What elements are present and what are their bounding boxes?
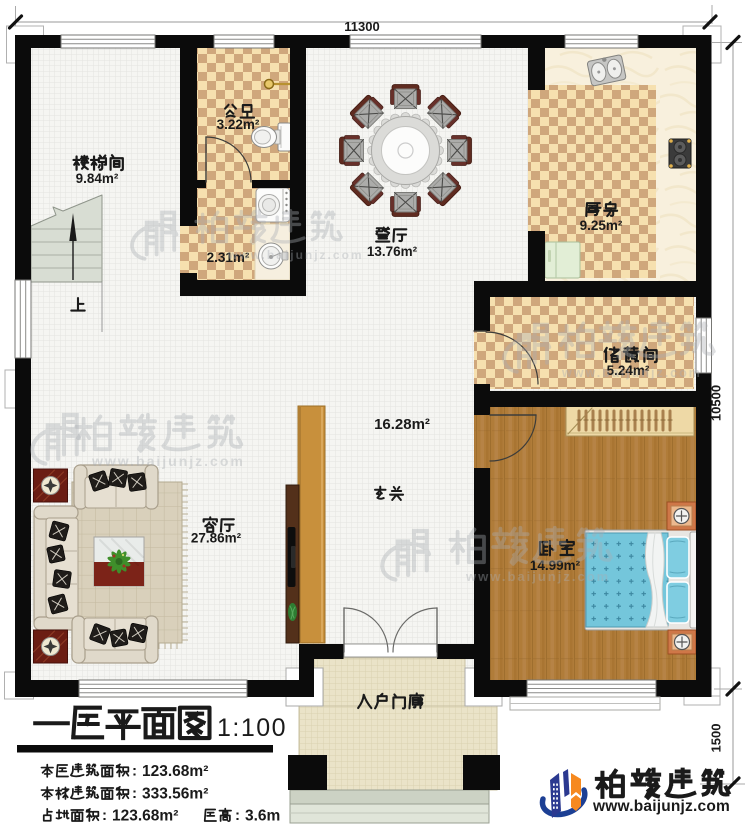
svg-text:www.baijunjz.com: www.baijunjz.com — [592, 798, 730, 815]
svg-text:1:100: 1:100 — [217, 714, 287, 742]
svg-text:9.84m²: 9.84m² — [76, 171, 119, 186]
svg-text:123.68m²: 123.68m² — [112, 808, 178, 825]
svg-text:www.baijunjz.com: www.baijunjz.com — [227, 248, 364, 262]
svg-text:3.6m: 3.6m — [245, 808, 280, 825]
svg-text:9.25m²: 9.25m² — [580, 218, 623, 233]
svg-text:333.56m²: 333.56m² — [142, 786, 208, 803]
svg-text:1500: 1500 — [709, 724, 724, 753]
svg-text:16.28m²: 16.28m² — [374, 416, 430, 433]
svg-text:27.86m²: 27.86m² — [191, 531, 242, 546]
svg-text:www.baijunjz.com: www.baijunjz.com — [465, 569, 610, 584]
svg-text:3.22m²: 3.22m² — [217, 117, 260, 132]
svg-text:11300: 11300 — [344, 19, 379, 34]
svg-text::: : — [102, 807, 107, 824]
svg-text:123.68m²: 123.68m² — [142, 763, 208, 780]
svg-text::: : — [132, 763, 137, 780]
svg-text:13.76m²: 13.76m² — [367, 244, 418, 259]
svg-text:10500: 10500 — [709, 385, 724, 421]
svg-text::: : — [235, 807, 240, 824]
svg-text::: : — [132, 785, 137, 802]
svg-text:www.baijunjz.com: www.baijunjz.com — [91, 453, 245, 469]
svg-text:www.baijunjz.com: www.baijunjz.com — [561, 366, 702, 380]
